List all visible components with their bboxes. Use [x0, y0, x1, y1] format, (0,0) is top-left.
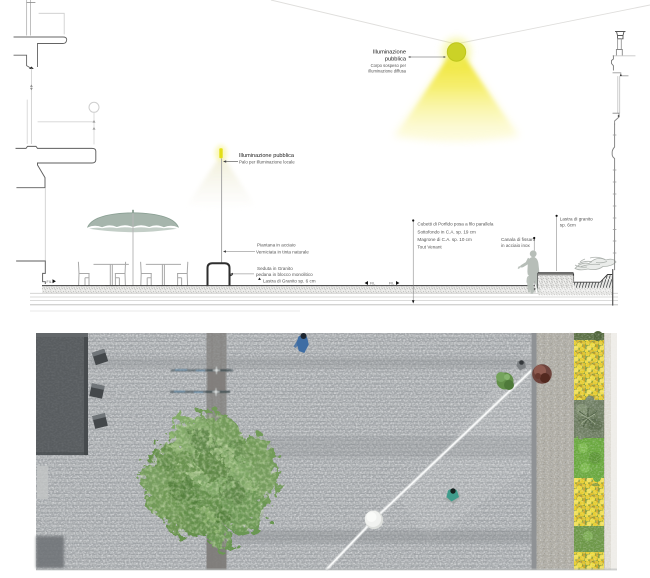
svg-text:Lastra di granito: Lastra di granito: [560, 217, 593, 222]
svg-text:Magrone di C.A. sp. 10 cm: Magrone di C.A. sp. 10 cm: [417, 237, 472, 242]
svg-text:FIL: FIL: [389, 282, 394, 286]
svg-text:Sottofondo in C.A. sp. 19 cm: Sottofondo in C.A. sp. 19 cm: [417, 230, 476, 235]
svg-text:pedana in blocco monolitico: pedana in blocco monolitico: [256, 272, 313, 277]
svg-text:in acciaio inox: in acciaio inox: [501, 243, 531, 248]
svg-text:Corpo sospeso per: Corpo sospeso per: [371, 63, 407, 68]
svg-text:Canala di fissaro: Canala di fissaro: [501, 237, 536, 242]
svg-text:Cubetti di Porfido posa a filo: Cubetti di Porfido posa a filo parallela: [417, 221, 494, 226]
svg-text:Piantana in acciaio: Piantana in acciaio: [257, 243, 296, 248]
svg-text:Tout Venant: Tout Venant: [417, 245, 442, 250]
svg-text:Lastra di Granito sp. 6 cm: Lastra di Granito sp. 6 cm: [263, 279, 316, 284]
svg-text:pubblica: pubblica: [385, 57, 407, 63]
svg-text:Verniciata in tinta naturale: Verniciata in tinta naturale: [256, 250, 309, 255]
svg-text:Palo per illuminazione locale: Palo per illuminazione locale: [239, 160, 295, 165]
svg-text:Illuminazione pubblica: Illuminazione pubblica: [239, 153, 295, 159]
svg-text:sp. 6cm: sp. 6cm: [560, 222, 576, 227]
svg-text:FIL: FIL: [370, 282, 375, 286]
svg-text:illuminazione diffusa: illuminazione diffusa: [368, 68, 406, 73]
svg-text:FIL: FIL: [47, 280, 52, 284]
svg-text:Illuminazione: Illuminazione: [373, 50, 406, 56]
svg-text:Seduta in Granito: Seduta in Granito: [257, 266, 293, 271]
